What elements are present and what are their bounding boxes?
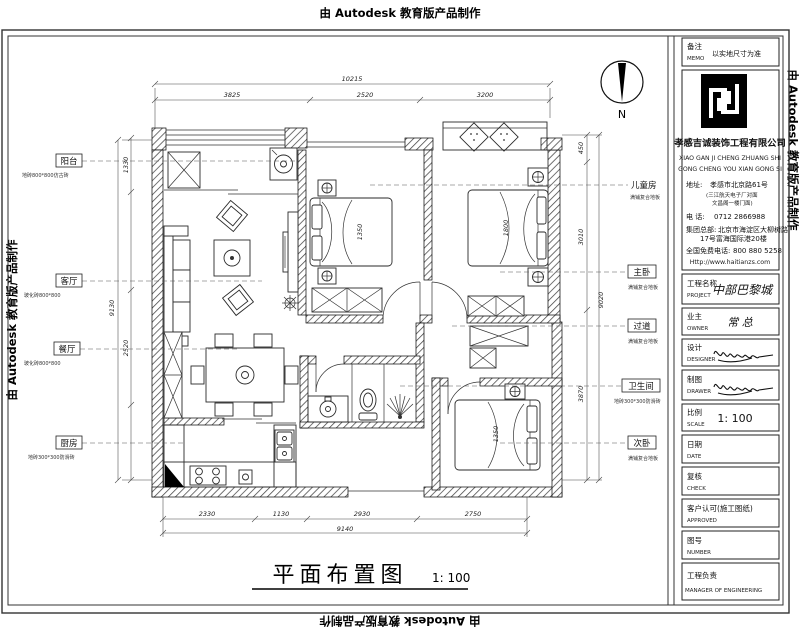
field-designer-en: DESIGNER (687, 357, 716, 363)
kitchen-corner-unit (165, 464, 184, 487)
dim-right-seg2: 3010 (577, 229, 585, 246)
field-drawer-en: DRAWER (687, 389, 711, 395)
label-living-text: 客厅 (60, 276, 78, 287)
north-label: N (618, 108, 626, 121)
label-master: 主卧 满铺复合地板 (500, 265, 658, 291)
field-scale-en: SCALE (687, 422, 705, 428)
drawing-title-scale: 1: 100 (432, 571, 470, 585)
dim-bot-total: 9140 (337, 525, 354, 533)
nightstand-master-1 (528, 168, 548, 186)
field-scale-cn: 比例 (687, 407, 702, 417)
label-kitchen-note: 地砖300*300防滑砖 (28, 454, 75, 461)
drawing-title-text: 平面布置图 (272, 563, 407, 588)
label-bathroom-note: 地砖300*300防滑砖 (614, 398, 661, 405)
label-corridor-text: 过道 (633, 321, 651, 332)
field-project-en: PROJECT (687, 293, 711, 299)
dining-cabinet (164, 332, 182, 418)
dim-bot-seg4: 2750 (465, 510, 482, 518)
field-owner-value: 常 总 (727, 316, 753, 329)
memo-en: MEMO (687, 56, 705, 62)
field-owner-cn: 业主 (687, 311, 702, 321)
wardrobe-master (468, 296, 524, 316)
label-balcony-text: 阳台 (60, 156, 77, 167)
label-dining-text: 餐厅 (58, 345, 76, 355)
wardrobe-children (312, 288, 382, 312)
door-master (432, 282, 467, 319)
dims-right: 450 3010 3870 9020 (562, 132, 605, 483)
kitchen-sink (275, 430, 294, 462)
label-dining-note: 玻化砖800*800 (24, 360, 61, 367)
company-addr-label: 地址: (686, 180, 702, 189)
dim-right-seg1: 450 (577, 142, 585, 154)
watermark-left: 由 Autodesk 教育版产品制作 (5, 239, 19, 401)
label-bedroom2-text: 次卧 (633, 438, 651, 449)
border-inner (8, 36, 783, 605)
field-number-cn: 图号 (687, 536, 702, 545)
bed-children-size: 1350 (356, 224, 364, 241)
company-hotline-label: 全国免费电话: (686, 246, 730, 255)
field-manager-en: MANAGER OF ENGINEERING (685, 588, 762, 594)
plant (282, 295, 298, 311)
door-bathroom (316, 364, 344, 392)
coffee-table (214, 240, 250, 276)
field-number-en: NUMBER (687, 550, 711, 556)
dim-top-total: 10215 (342, 75, 363, 83)
label-master-note: 满铺复合地板 (628, 284, 658, 291)
drawing-title: 平面布置图 1: 100 (252, 563, 470, 589)
company-addr: 孝感市北京路61号 (710, 180, 768, 189)
field-date-cn: 日期 (687, 440, 702, 449)
balcony-cabinet (168, 152, 200, 188)
company-hotline: 800 880 5258 (733, 247, 782, 255)
company-pinyin2: GONG CHENG YOU XIAN GONG SI (678, 166, 782, 173)
nightstand-children-1 (318, 180, 336, 196)
field-check-en: CHECK (687, 486, 706, 492)
nightstand-children-2 (318, 268, 336, 284)
titleblock: 备注 MEMO 以实地尺寸为准 孝感吉诚装饰工程有限公司 XIAO GAN JI… (673, 38, 788, 600)
field-approved-cn: 客户认可(施工图纸) (687, 503, 753, 513)
company-name: 孝感吉诚装饰工程有限公司 (673, 137, 786, 149)
bed-master: 1800 (468, 190, 548, 266)
watermark-right: 由 Autodesk 教育版产品制作 (786, 69, 800, 231)
dim-right-seg3: 3870 (577, 386, 585, 403)
label-children-text: 儿童房 (631, 180, 657, 191)
label-living-note: 玻化砖800*800 (24, 292, 61, 299)
field-project-value: 中部巴黎城 (712, 283, 774, 297)
field-drawer-cn: 制图 (687, 374, 702, 384)
field-manager-cn: 工程负责 (687, 570, 717, 580)
bathroom-sink (320, 397, 336, 417)
company-pinyin1: XIAO GAN JI CHENG ZHUANG SHI (679, 155, 781, 162)
memo-cn: 备注 (687, 41, 702, 51)
border-outer (2, 30, 789, 613)
bed-children: 1350 (310, 198, 392, 266)
dims-left: 9130 1330 2520 (108, 135, 152, 483)
watermark-top: 由 Autodesk 教育版产品制作 (319, 6, 481, 20)
label-bathroom-text: 卫生间 (628, 381, 654, 392)
field-designer-cn: 设计 (687, 342, 702, 352)
memo-value: 以实地尺寸为准 (712, 49, 761, 58)
north-arrow: N (601, 61, 643, 121)
door-children (383, 282, 420, 319)
dim-bot-seg1: 2330 (199, 510, 216, 518)
company-hq1: 北京市海淀区大柳树路 (718, 225, 788, 234)
toilet (359, 389, 377, 420)
tv-cabinet (283, 212, 298, 292)
bed-master-size: 1800 (502, 220, 510, 237)
armchair-2 (223, 285, 254, 316)
label-balcony-note: 地砖800*800仿古砖 (22, 172, 69, 179)
field-owner-en: OWNER (687, 326, 708, 332)
label-children-note: 满铺复合地板 (630, 194, 660, 201)
cad-sheet: 由 Autodesk 教育版产品制作 由 Autodesk 教育版产品制作 由 … (0, 0, 800, 640)
bed-second: 1350 (455, 400, 540, 470)
company-addr-note2: 文昌阁一楼门面) (712, 199, 753, 207)
label-bedroom2-note: 满铺复合地板 (628, 455, 658, 462)
bed-second-size: 1350 (492, 426, 500, 443)
stove (190, 466, 226, 485)
dim-bot-seg2: 1130 (273, 510, 290, 518)
dim-left-seg2: 2520 (122, 340, 130, 357)
field-manager-box (682, 563, 779, 600)
field-scale-value: 1: 100 (717, 412, 752, 425)
company-tel: 0712 2866988 (714, 213, 765, 221)
armchair-1 (217, 201, 248, 232)
balcony-slider (164, 190, 298, 194)
company-addr-note1: (三江航天电子厂对面 (706, 191, 758, 199)
label-kitchen-text: 厨房 (60, 438, 77, 449)
dim-top-seg3: 3200 (477, 91, 494, 99)
dims-top: 10215 3825 2520 3200 (152, 75, 553, 128)
dim-left-total: 9130 (108, 300, 116, 317)
label-corridor-note: 满铺复合地板 (628, 338, 658, 345)
company-logo (701, 74, 747, 128)
washing-machine (270, 148, 297, 180)
kitchen-slider (222, 419, 296, 423)
corridor-cabinet (470, 326, 528, 368)
dim-bot-seg3: 2930 (354, 510, 371, 518)
company-hq2: 17号富海国际港20楼 (700, 234, 767, 243)
field-approved-en: APPROVED (687, 518, 717, 524)
company-website: Http://www.haitianzs.com (690, 259, 771, 266)
dims-bottom: 2330 1130 2930 2750 9140 (160, 497, 530, 537)
floor-drain (239, 470, 252, 484)
nightstand-master-2 (528, 268, 548, 286)
bay-window (443, 122, 547, 151)
sofa (164, 226, 190, 346)
dining-table (191, 334, 298, 416)
company-tel-label: 电 话: (686, 212, 705, 221)
dim-left-seg1: 1330 (122, 157, 130, 174)
dim-top-seg2: 2520 (357, 91, 374, 99)
drawing-svg: 由 Autodesk 教育版产品制作 由 Autodesk 教育版产品制作 由 … (0, 0, 800, 640)
dim-right-total: 9020 (597, 292, 605, 309)
watermark-bottom: 由 Autodesk 教育版产品制作 (319, 614, 481, 628)
field-check-cn: 复核 (687, 471, 702, 481)
label-master-text: 主卧 (633, 267, 651, 278)
shower (387, 394, 413, 419)
dim-top-seg1: 3825 (224, 91, 241, 99)
company-hq-label: 集团总部: (686, 225, 716, 234)
field-date-en: DATE (687, 454, 702, 460)
